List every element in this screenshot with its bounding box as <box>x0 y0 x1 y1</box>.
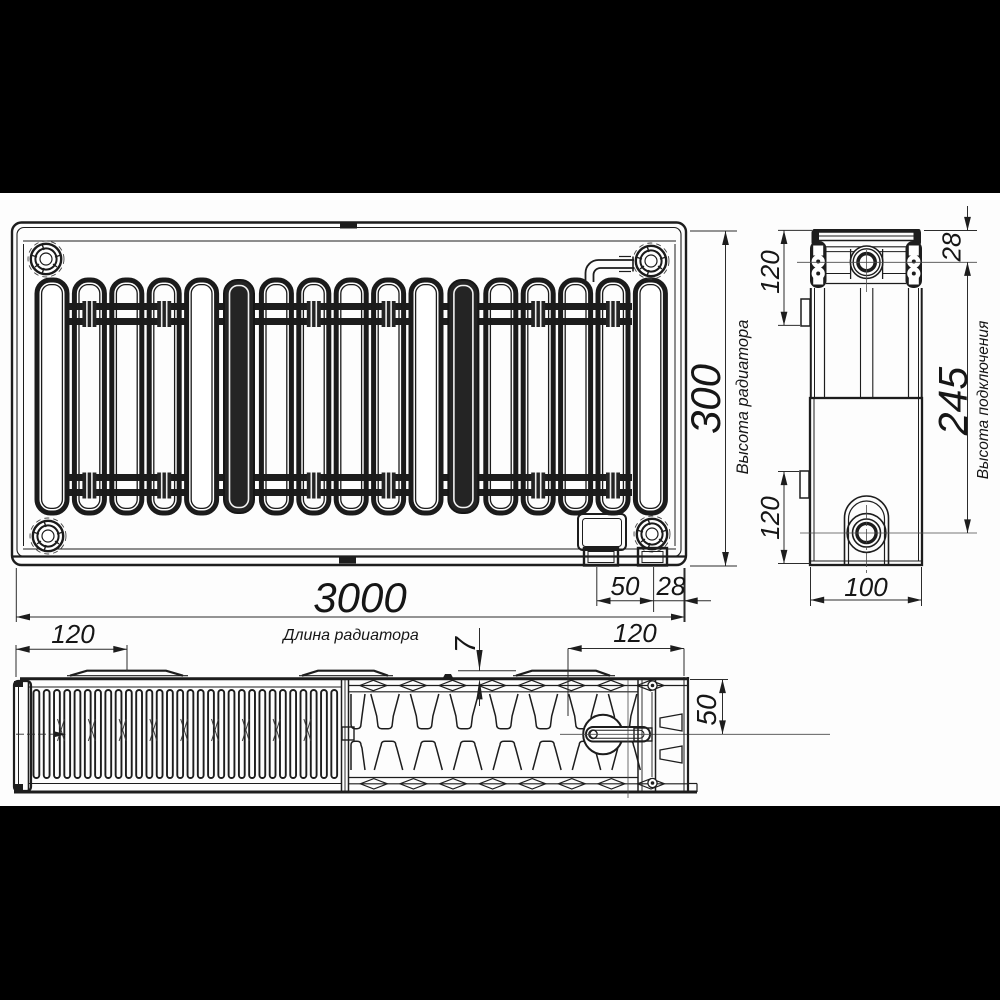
svg-text:120: 120 <box>755 250 785 294</box>
svg-text:245: 245 <box>930 367 976 437</box>
svg-text:Высота подключения: Высота подключения <box>975 321 992 480</box>
svg-text:50: 50 <box>611 571 640 601</box>
svg-text:3000: 3000 <box>313 574 407 621</box>
svg-text:28: 28 <box>937 232 967 262</box>
svg-text:Длина радиатора: Длина радиатора <box>281 627 419 644</box>
svg-text:50: 50 <box>691 694 722 726</box>
svg-text:120: 120 <box>755 496 785 540</box>
svg-text:28: 28 <box>656 571 686 601</box>
svg-text:7: 7 <box>450 635 482 653</box>
svg-text:300: 300 <box>682 363 729 434</box>
svg-text:Высота радиатора: Высота радиатора <box>734 320 752 475</box>
svg-text:120: 120 <box>51 619 95 649</box>
svg-text:100: 100 <box>844 572 888 602</box>
svg-text:120: 120 <box>613 618 657 648</box>
